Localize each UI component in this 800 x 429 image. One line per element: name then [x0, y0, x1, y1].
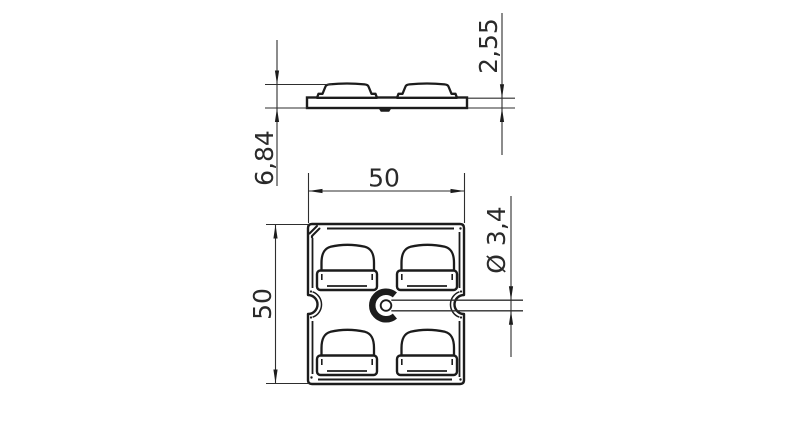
- dimension-overall-height: 6,84: [250, 40, 332, 186]
- dimension-label: 50: [368, 164, 400, 193]
- button-pad-bottom-right: [397, 330, 457, 375]
- dimension-base-thickness: 2,55: [468, 13, 515, 155]
- dimension-height: 50: [248, 225, 309, 384]
- dimension-width: 50: [309, 164, 465, 224]
- arrowhead: [451, 189, 465, 193]
- button-pad-bottom-left: [317, 330, 377, 375]
- arrowhead: [500, 84, 504, 98]
- dimension-label: 6,84: [250, 130, 279, 186]
- button-pad-top-right: [397, 245, 457, 290]
- arrowhead: [509, 286, 513, 300]
- dimension-hole-diameter: Ø 3,4: [482, 196, 513, 357]
- dimension-label: Ø 3,4: [482, 206, 511, 273]
- button-pad-top-left: [317, 245, 377, 290]
- side-view: 6,84 2,55: [250, 13, 515, 186]
- arrowhead: [275, 108, 279, 122]
- side-view-left-dome: [317, 84, 377, 98]
- dimension-label: 2,55: [474, 18, 503, 74]
- arrowhead: [309, 189, 323, 193]
- center-hole: [381, 300, 392, 311]
- side-view-base-plate: [307, 98, 467, 109]
- arrowhead: [273, 225, 277, 239]
- side-view-right-dome: [397, 84, 457, 98]
- plan-view: 50 50 Ø 3,4: [248, 164, 523, 385]
- technical-drawing-page: 6,84 2,55: [0, 0, 800, 429]
- dimension-label: 50: [248, 288, 277, 320]
- arrowhead: [509, 311, 513, 325]
- technical-drawing-canvas: 6,84 2,55: [0, 0, 800, 429]
- arrowhead: [273, 370, 277, 384]
- arrowhead: [275, 71, 279, 85]
- arrowhead: [500, 108, 504, 122]
- side-view-center-tab: [379, 108, 392, 112]
